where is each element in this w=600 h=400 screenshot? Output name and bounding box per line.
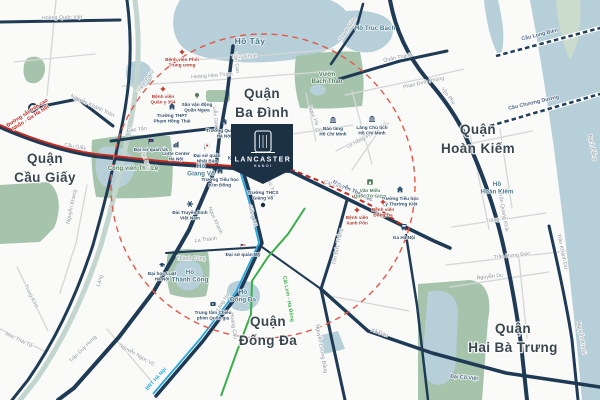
- stadium-icon: [195, 93, 199, 99]
- landmark-label: Trường THPTPhạm Hồng Thái: [154, 113, 191, 123]
- hospital-icon: [380, 199, 386, 205]
- museum-icon: [330, 117, 336, 123]
- hospital-icon: [160, 86, 166, 92]
- park-label: Công viên Thủ Lệ: [108, 166, 159, 172]
- botanical-garden-pond: [310, 85, 326, 96]
- street-label: Xã Đàn: [370, 327, 389, 339]
- district-label: QuậnHoàn Kiếm: [441, 122, 515, 156]
- street-label: Thành Công: [176, 256, 205, 262]
- bars-icon: [174, 142, 179, 148]
- map-canvas: QuậnCầu GiấyQuậnBa ĐìnhQuậnHoàn KiếmQuận…: [0, 0, 600, 400]
- tv-icon: [187, 201, 193, 207]
- university-icon: [159, 263, 165, 267]
- hospital-icon: [354, 207, 360, 213]
- landmark-label: Lăng Chủ tịchHồ Chí Minh: [356, 125, 387, 135]
- landmark-label: Đài Truyền hìnhViệt Nam: [172, 210, 207, 220]
- bay-mau-lake-water: [423, 291, 458, 385]
- river-branch-water: [484, 0, 503, 58]
- landmark-label: Bảo tàngHồ Chí Minh: [319, 126, 346, 136]
- landmark-label: Ga Hà Nội: [393, 235, 415, 240]
- museum-icon: [369, 116, 375, 122]
- street-label: La Thành: [194, 236, 217, 244]
- landmark-label: Bệnh viện PhổiTrung ương: [165, 56, 199, 67]
- train-icon: [401, 224, 406, 231]
- street-label: Giảng Võ: [246, 204, 257, 227]
- street-label: Đào Tấn: [126, 126, 147, 134]
- street-label: Mạc Thái Tổ: [4, 330, 33, 349]
- street-label: Trần Duy Hưng: [68, 334, 98, 364]
- road-lieu-giai: [216, 46, 233, 167]
- marker-subtitle: HANOI: [254, 164, 273, 168]
- street-label: Hoàng Cầu: [228, 312, 238, 339]
- landmark-label: Trường Tiểu họcLý Thường Kiệt: [381, 195, 419, 206]
- road-ton-duc-thang: [321, 200, 347, 289]
- district-label: QuậnCầu Giấy: [14, 151, 76, 185]
- landmark-label: Bệnh việnQuân y 354: [150, 94, 175, 104]
- water-label: Hồ Trúc Bạch: [355, 23, 396, 32]
- landmark-label: Đại sứ quánNhật Bản: [193, 153, 220, 163]
- street-label: Nguyễn Khánh Toàn: [69, 92, 115, 119]
- street-label: Trần Hưng Đạo: [493, 251, 530, 261]
- marker-location-dot: [261, 203, 265, 207]
- street-label: Láng: [95, 274, 104, 287]
- landmark-label: Trung tâm Chiếuphim Quốc gia: [195, 309, 232, 320]
- school-icon: [397, 186, 403, 192]
- street-label: Nguyễn Khang: [64, 189, 78, 225]
- landmark-label: Đại sứ quán Mỹ: [226, 252, 261, 257]
- flag-jp-icon: [205, 144, 210, 150]
- landmark-label: Bệnh việnĐống Đa: [372, 207, 395, 217]
- street-label: Hoàng Quốc Việt: [42, 15, 83, 22]
- street-label: Trung Kính: [23, 284, 40, 310]
- marker-title: LANCASTER: [235, 157, 292, 164]
- metro-line-3-label: Đường sắt trên caoNhổn - Ga Hà Nội: [5, 97, 52, 134]
- hospital-icon: [179, 49, 185, 55]
- district-label: QuậnĐống Đa: [239, 314, 297, 348]
- street-label: Liễu Giai: [211, 106, 220, 128]
- cinema-icon: [210, 302, 215, 306]
- cau-giay-park: [0, 182, 59, 244]
- water-label: Hồ Tây: [235, 36, 266, 46]
- street-label: Tôn Đức Thắng: [330, 228, 345, 266]
- landmark-label: Sân vận độngQuần Ngựa: [182, 102, 213, 112]
- temple-icon: [367, 179, 373, 185]
- street-label: Ngọc Khánh: [206, 206, 223, 235]
- district-label: QuậnBa Đình: [235, 86, 289, 120]
- landmark-label: Bệnh việnXanh Pôn: [346, 215, 369, 225]
